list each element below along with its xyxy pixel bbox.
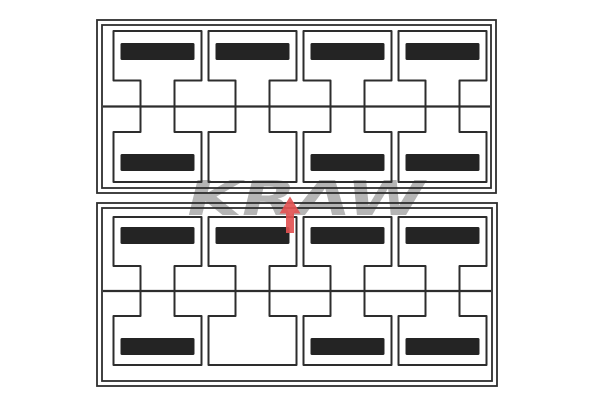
bottom-panel-bottom-piece-2 <box>209 291 297 365</box>
bottom-panel-bottom-bar-3 <box>311 338 385 355</box>
top-panel-top-bar-3 <box>311 43 385 60</box>
watermark-text: KRAW <box>179 172 431 227</box>
top-panel-top-piece-4 <box>399 31 487 107</box>
top-panel-top-piece-3 <box>304 31 392 107</box>
gasket-panels <box>97 20 497 386</box>
bottom-panel-bottom-bar-1 <box>121 338 195 355</box>
top-panel-bottom-bar-4 <box>406 154 480 171</box>
bottom-panel-top-bar-3 <box>311 227 385 244</box>
top-panel-bottom-bar-1 <box>121 154 195 171</box>
watermark: KRAW <box>179 172 431 227</box>
diagram-canvas: KRAW <box>0 0 600 400</box>
gasket-top-panel <box>97 20 496 193</box>
bottom-panel-bottom-bar-4 <box>406 338 480 355</box>
top-panel-top-bar-2 <box>216 43 290 60</box>
top-panel-top-piece-2 <box>209 31 297 107</box>
top-panel-top-bar-4 <box>406 43 480 60</box>
gasket-diagram: KRAW <box>0 0 600 400</box>
top-panel-top-piece-1 <box>114 31 202 107</box>
gasket-bottom-panel <box>97 203 497 386</box>
top-panel-top-bar-1 <box>121 43 195 60</box>
bottom-panel-top-bar-1 <box>121 227 195 244</box>
bottom-panel-top-bar-2 <box>216 227 290 244</box>
bottom-panel-top-bar-4 <box>406 227 480 244</box>
top-panel-bottom-bar-3 <box>311 154 385 171</box>
